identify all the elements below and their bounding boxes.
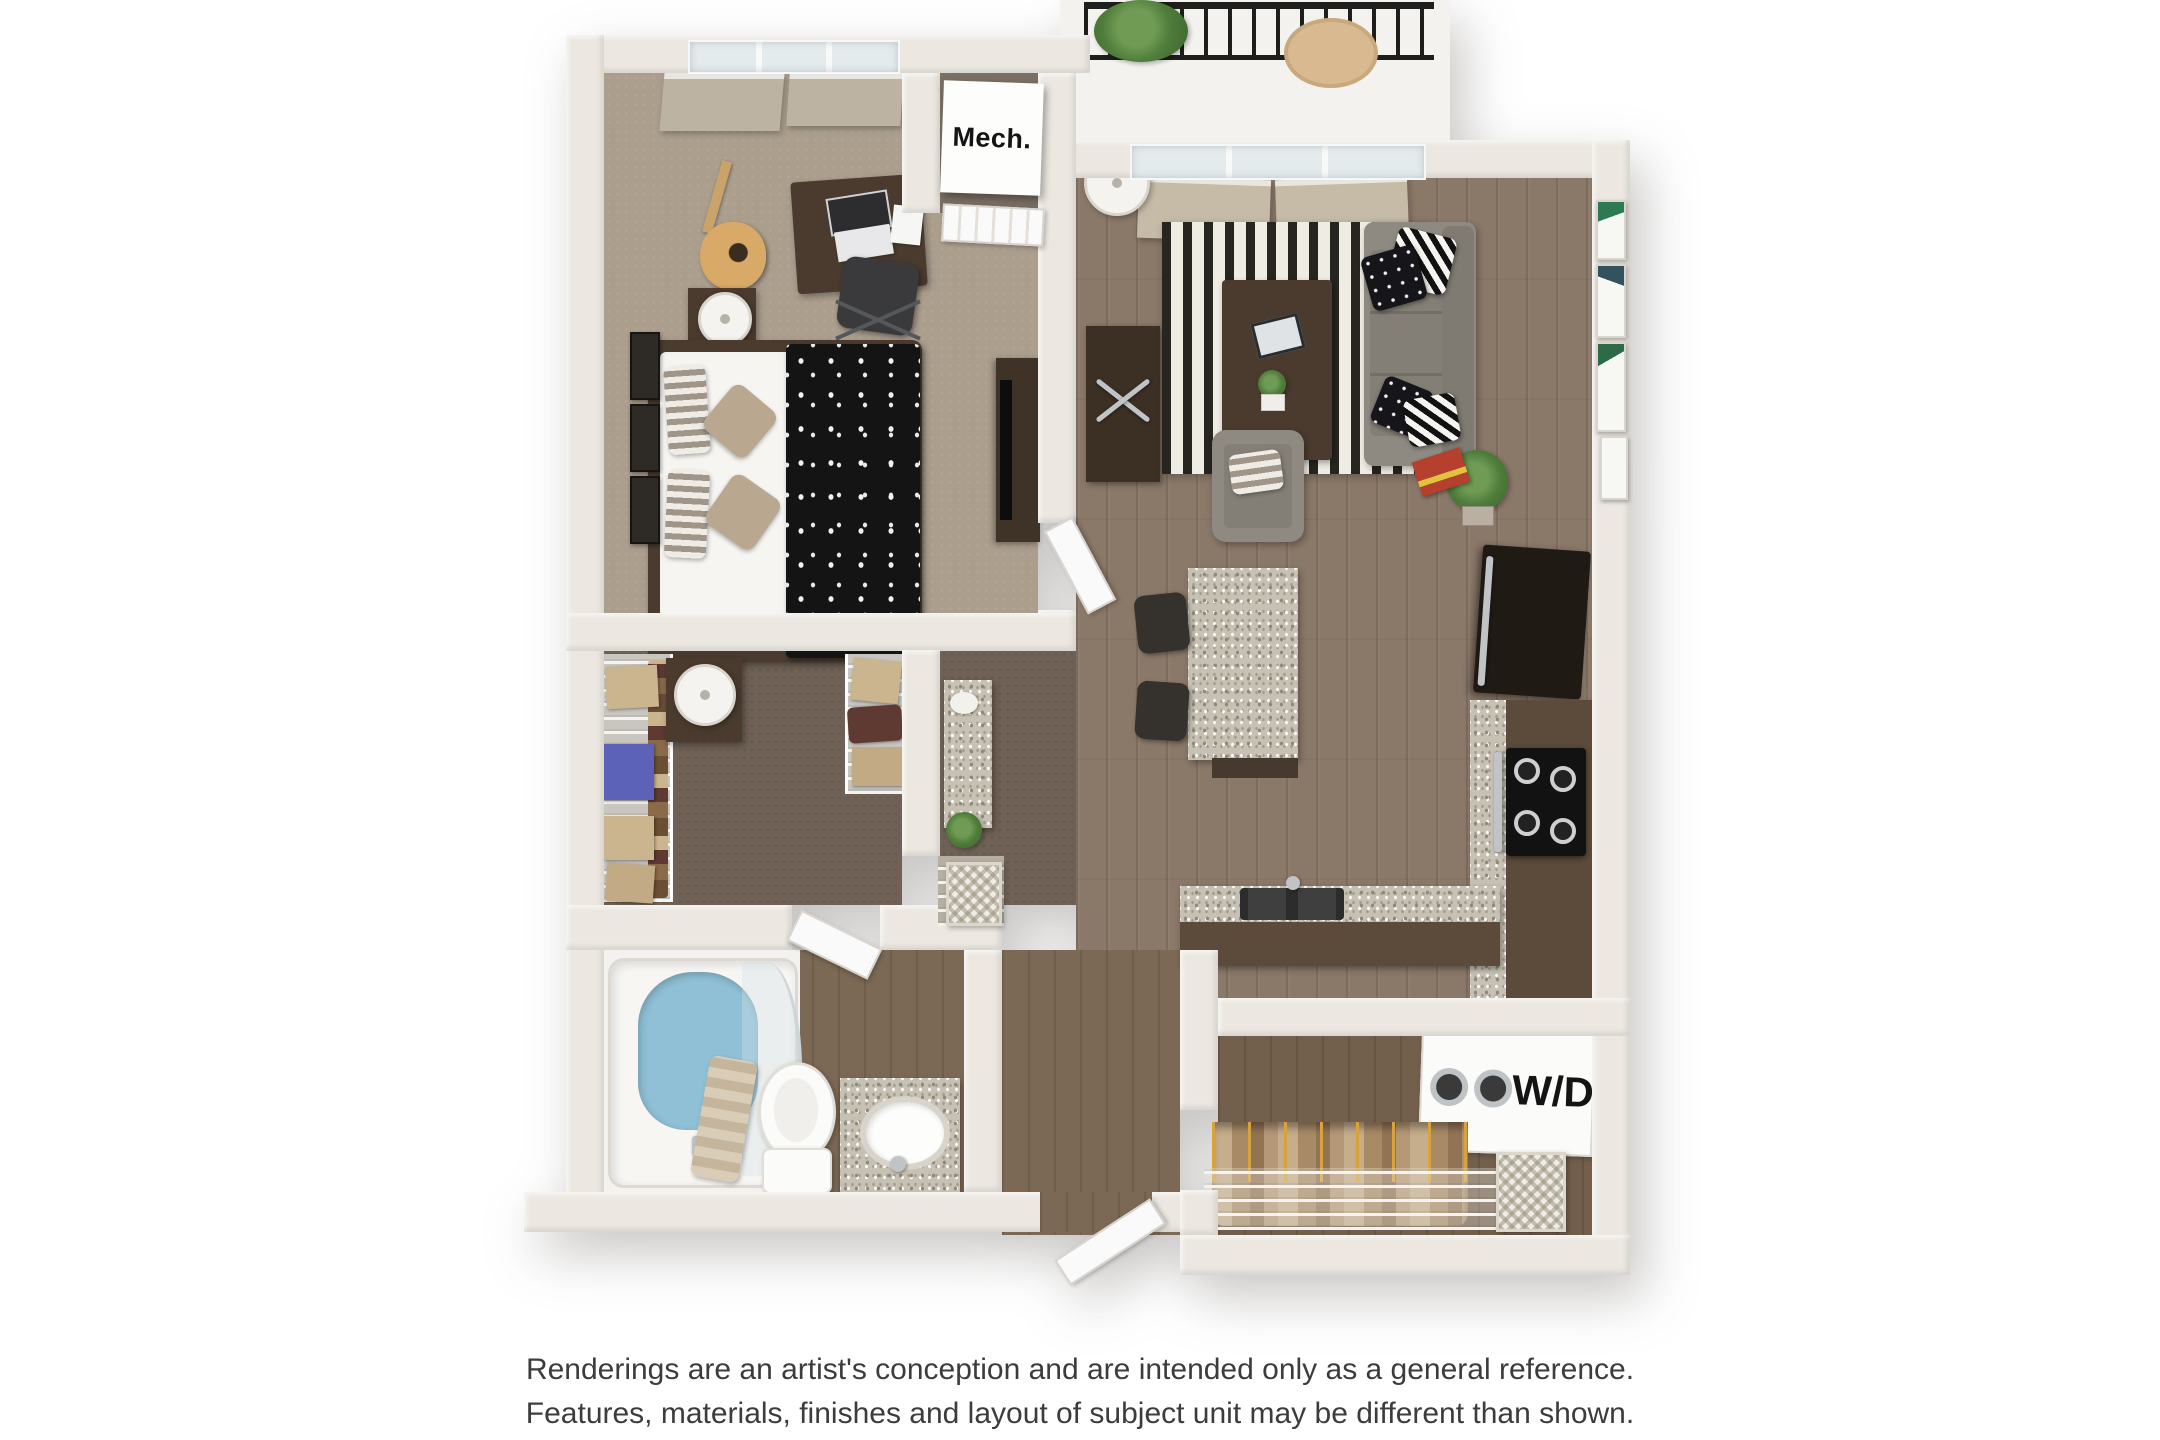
vanity-sink	[860, 1096, 950, 1170]
bed-duvet-polkadot	[786, 344, 920, 658]
disclaimer-line-2: Features, materials, finishes and layout…	[0, 1392, 2160, 1436]
wall-bath-east	[964, 950, 1002, 1192]
washer-dryer-label-face: W/D	[1514, 1032, 1592, 1151]
bedroom-wall-art-1	[630, 332, 660, 400]
cooktop-burner-4	[1550, 818, 1576, 844]
balcony-sliding-door	[1130, 144, 1426, 180]
hall-plant	[946, 812, 982, 848]
closet-right-clothes	[847, 704, 903, 744]
closet-right-box-2	[852, 748, 902, 786]
living-floor-plant-pot	[1462, 506, 1494, 526]
kitchen-island	[1188, 568, 1298, 760]
cooktop-burner-1	[1514, 758, 1540, 784]
mech-closet-label-box: Mech.	[940, 80, 1044, 195]
laundry-wire-shelf	[1204, 1168, 1534, 1230]
desk-chair	[835, 255, 920, 337]
coffee-table-plant-pot	[1261, 394, 1285, 411]
cooktop-burner-2	[1550, 766, 1576, 792]
apartment-floorplan: Mech.	[0, 0, 2160, 1440]
nightstand-lamp-bottom	[674, 664, 736, 726]
washer-door	[1429, 1067, 1468, 1106]
hall-console-flowers	[950, 692, 978, 714]
oven-handle	[1494, 752, 1502, 852]
kitchen-sink	[1240, 888, 1344, 920]
kitchen-faucet	[1286, 876, 1300, 890]
disclaimer: Renderings are an artist's conception an…	[0, 1348, 2160, 1436]
cooktop	[1506, 748, 1586, 856]
mech-closet-label: Mech.	[952, 121, 1032, 155]
bedroom-window-shade-left	[659, 73, 784, 131]
toilet-seat	[774, 1078, 818, 1142]
closet-right-box	[850, 658, 902, 705]
mech-closet-door	[941, 203, 1045, 246]
guitar-body	[700, 222, 766, 290]
living-wall-art-1	[1596, 200, 1626, 260]
vanity-faucet	[890, 1156, 906, 1172]
balcony-plant	[1094, 0, 1188, 62]
bar-stool-2	[1134, 680, 1190, 741]
living-wall-art-2	[1596, 264, 1626, 338]
armchair-pillow	[1227, 449, 1284, 496]
bed-pillow-striped-2	[664, 469, 711, 559]
laundry-basket	[1496, 1152, 1566, 1232]
bedroom-wall-art-2	[630, 404, 660, 472]
wall-mech-left	[902, 73, 940, 213]
floorplan-rendering-page: Mech.	[0, 0, 2160, 1440]
bed-pillow-striped-1	[663, 365, 711, 456]
bedroom-window	[688, 40, 900, 74]
wall-bottom-laundry	[1180, 1235, 1630, 1275]
living-wall-art-3	[1596, 342, 1626, 432]
balcony-table	[1284, 18, 1378, 88]
bedroom-tv	[1000, 380, 1012, 520]
toilet-tank	[762, 1148, 832, 1194]
disclaimer-line-1: Renderings are an artist's conception an…	[0, 1348, 2160, 1392]
bedroom-window-shade-right	[786, 73, 904, 126]
closet-box-2	[604, 816, 654, 860]
bedroom-wall-art-3	[630, 476, 660, 544]
linen-basket	[946, 862, 1002, 926]
wall-laundry-west-lower	[1180, 1190, 1218, 1235]
nightstand-lamp-top	[698, 292, 752, 346]
living-wall-art-4	[1600, 436, 1628, 500]
closet-box-1	[605, 665, 659, 710]
closet-box-3	[605, 862, 656, 903]
dryer-door	[1473, 1069, 1512, 1108]
wall-laundry-west-upper	[1180, 950, 1218, 1110]
washer-dryer-label: W/D	[1511, 1066, 1594, 1117]
wall-closet-east	[902, 650, 940, 856]
wall-bedroom-south	[566, 613, 1076, 651]
wall-bath-north-west	[566, 905, 792, 950]
cooktop-burner-3	[1514, 810, 1540, 836]
bar-stool-1	[1133, 591, 1191, 654]
wall-bedroom-right-upper	[1038, 73, 1076, 523]
closet-blue-bin	[602, 744, 654, 800]
sofa-pillow-diamond-bottom	[1402, 392, 1462, 448]
wall-laundry-north	[1218, 998, 1630, 1036]
kitchen-island-base	[1212, 758, 1298, 778]
